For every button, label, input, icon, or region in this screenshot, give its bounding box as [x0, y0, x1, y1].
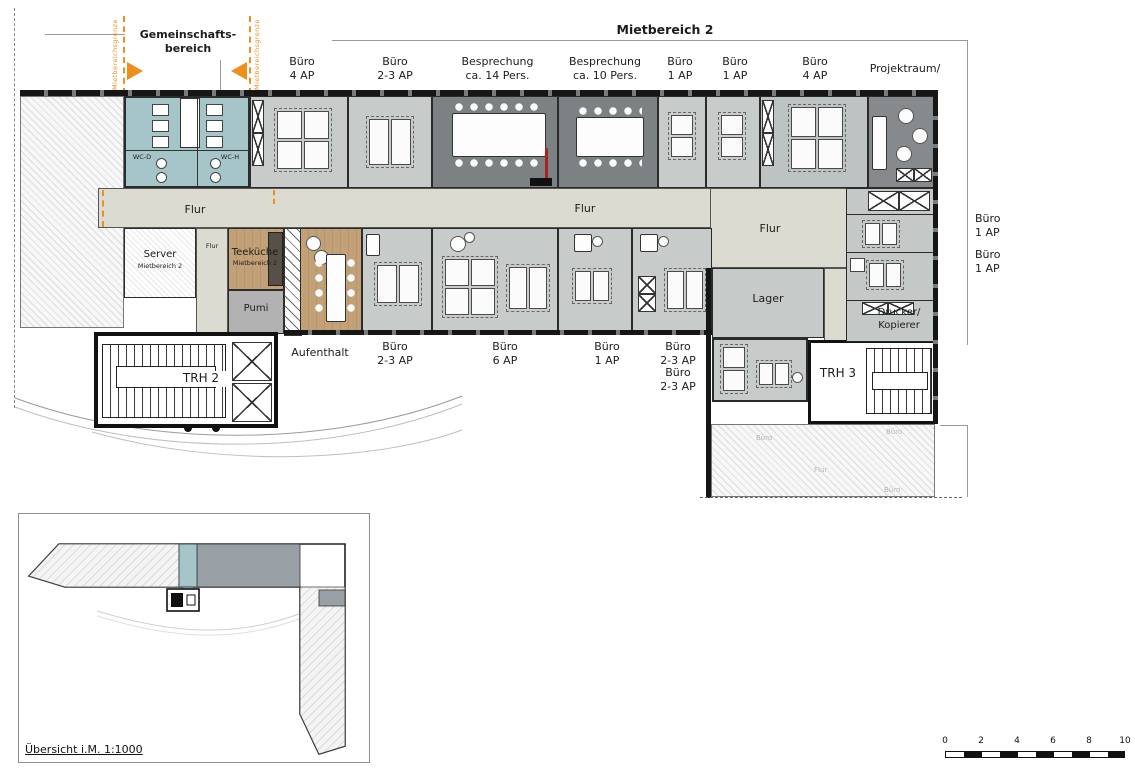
projekt-shelf [872, 116, 887, 170]
wc-stall [206, 104, 223, 116]
side-table [366, 234, 380, 256]
label-buero-1ap-r1: Büro 1 AP [975, 212, 1025, 241]
scale-tick-6: 6 [1050, 736, 1056, 746]
label-besprechung-10: Besprechung ca. 10 Pers. [550, 55, 660, 84]
label-buero-23ap-top: Büro 2-3 AP [355, 55, 435, 84]
overview-map: Übersicht i.M. 1:1000 [18, 513, 370, 763]
crate-x [896, 168, 914, 182]
scale-bar-segments [945, 751, 1125, 758]
label-flur-right: Flur [745, 222, 795, 236]
chair-dot [658, 236, 669, 247]
label-flur-center: Flur [560, 202, 610, 216]
chairs-row [454, 158, 544, 168]
label-buero-4ap-top2: Büro 4 AP [775, 55, 855, 84]
wall-line [846, 300, 938, 301]
label-teekueche-sub: Mietbereich 2 [226, 259, 284, 267]
desks-23ap-top [366, 116, 414, 168]
faint-label-buero-1: Büro [756, 434, 772, 442]
label-trh3: TRH 3 [812, 366, 864, 382]
lunch-table [326, 254, 346, 322]
desks-4ap-2 [788, 104, 846, 172]
label-buero-1ap-top1: Büro 1 AP [655, 55, 705, 84]
boundary-label-right: Mietbereichsgrenze [253, 24, 261, 90]
label-buero-6ap-b: Büro 6 AP [470, 340, 540, 369]
side-table [574, 234, 592, 252]
wc-stall [152, 120, 169, 132]
leader-line-mietbereich [332, 40, 968, 41]
label-aufenthalt: Aufenthalt [282, 346, 358, 360]
desks-6ap-b [506, 264, 550, 312]
scale-tick-4: 4 [1014, 736, 1020, 746]
scale-tick-2: 2 [978, 736, 984, 746]
lounge-chair [896, 146, 912, 162]
desks-23ap-mid2 [664, 268, 706, 312]
dimension-line-lower [967, 425, 968, 497]
wc-stall [152, 136, 169, 148]
stairs-trh3-landing [872, 372, 928, 390]
sink-block [850, 258, 865, 272]
shaft-x-2b [762, 133, 774, 166]
common-area-label: Gemeinschafts- bereich [132, 28, 244, 57]
faint-label-buero-2: Büro [886, 428, 902, 436]
boundary-line-left [123, 16, 125, 94]
floor-plan-sheet: Mietbereich 2 Gemeinschafts- bereich Mie… [0, 0, 1135, 783]
desks-23ap-mid [374, 262, 422, 306]
label-buero-1ap-r2: Büro 1 AP [975, 248, 1025, 277]
label-buero-1ap-top2: Büro 1 AP [710, 55, 760, 84]
label-buero-23ap-b: Büro 2-3 AP [360, 340, 430, 369]
pouf [306, 236, 321, 251]
equipment-block [530, 178, 552, 186]
property-dashed-line [14, 8, 15, 408]
crate-x [868, 191, 899, 211]
crate-x [899, 191, 930, 211]
shaft-x-1b [252, 133, 264, 166]
dimension-line-right [967, 40, 968, 345]
side-table [640, 234, 658, 252]
label-lager: Lager [738, 292, 798, 306]
label-server-sub: Mietbereich 2 [126, 262, 194, 270]
column-dot [184, 424, 192, 432]
boundary-corridor-mid [273, 190, 275, 204]
wc-sink [156, 172, 167, 183]
exterior-wall-middle-bottom [284, 330, 712, 335]
chairs-col [314, 258, 324, 318]
elevator-trh2-b [232, 383, 272, 422]
corridor-right-sliver [824, 268, 848, 344]
area-title: Mietbereich 2 [600, 22, 730, 38]
shaft-x-3b [638, 294, 656, 312]
boundary-label-left: Mietbereichsgrenze [111, 24, 119, 90]
wc-divider [197, 98, 198, 188]
common-area-leader [220, 60, 221, 92]
desk-1ap-right2 [866, 260, 904, 290]
wc-sink [210, 172, 221, 183]
shaft-x-2 [762, 100, 774, 133]
label-besprechung-14: Besprechung ca. 14 Pers. [445, 55, 550, 84]
faint-label-buero-3: Büro [884, 486, 900, 494]
scale-tick-0: 0 [942, 736, 948, 746]
desks-23ap-south [720, 344, 748, 394]
conference-table-14 [452, 113, 546, 157]
crate-x [914, 168, 932, 182]
chairs-col [346, 258, 356, 318]
wall-line [846, 252, 938, 253]
wc-stall [206, 120, 223, 132]
wc-partition [126, 150, 252, 151]
label-wc-h: WC-H [214, 153, 246, 161]
overview-drawing [19, 514, 367, 760]
wall-line [846, 214, 938, 215]
chair-dot [592, 236, 603, 247]
label-buero-23ap-b3: Büro 2-3 AP [643, 366, 713, 395]
label-drucker: Drucker/ Kopierer [864, 306, 934, 332]
label-flur-left: Flur [170, 203, 220, 217]
label-flur-small: Flur [196, 242, 228, 250]
desks-6ap-a [442, 256, 498, 318]
exterior-wall-right [933, 96, 938, 424]
desk-1ap-top2 [718, 112, 746, 160]
desks-4ap-1 [274, 108, 332, 172]
overview-caption: Übersicht i.M. 1:1000 [25, 743, 143, 756]
cut-dashed-line [700, 497, 962, 498]
lounge-chair [912, 128, 928, 144]
boundary-arrow-left-icon [127, 62, 143, 80]
label-buero-1ap-b: Büro 1 AP [572, 340, 642, 369]
faint-label-flur: Flur [814, 466, 827, 474]
label-server: Server [126, 248, 194, 261]
scale-tick-10: 10 [1119, 736, 1130, 746]
desk-1ap-top1 [668, 112, 696, 160]
label-wc-d: WC-D [126, 153, 158, 161]
conference-table-10 [576, 117, 644, 157]
chair-dot [792, 372, 803, 383]
desk-1ap-right1 [862, 220, 900, 248]
boundary-arrow-right-icon [231, 62, 247, 80]
meet-dot [464, 232, 475, 243]
scale-tick-8: 8 [1086, 736, 1092, 746]
label-buero-4ap-top: Büro 4 AP [262, 55, 342, 84]
label-pumi: Pumi [228, 302, 284, 315]
wc-stall [152, 104, 169, 116]
chairs-row [578, 158, 642, 168]
chairs-row [578, 106, 642, 116]
boundary-corridor-left [102, 190, 104, 227]
desk-1ap-mid [572, 268, 612, 304]
desk-south [756, 360, 792, 388]
scale-bar: 0 2 4 6 8 10 [945, 736, 1125, 766]
projektraum-line1: Projektraum/ [870, 62, 941, 75]
column-dot [212, 424, 220, 432]
wc-stall [206, 136, 223, 148]
label-buero-23ap-b2: Büro 2-3 AP [643, 340, 713, 369]
room-wc-block [124, 96, 250, 188]
lounge-chair [898, 108, 914, 124]
shaft-x-3 [638, 276, 656, 294]
shaft-x-1 [252, 100, 264, 133]
dimension-tick [940, 425, 967, 426]
elevator-trh2-a [232, 342, 272, 381]
chairs-row [454, 102, 544, 112]
label-teekueche: Teeküche [226, 246, 284, 259]
label-trh2: TRH 2 [174, 371, 228, 387]
boundary-line-right [249, 16, 251, 94]
